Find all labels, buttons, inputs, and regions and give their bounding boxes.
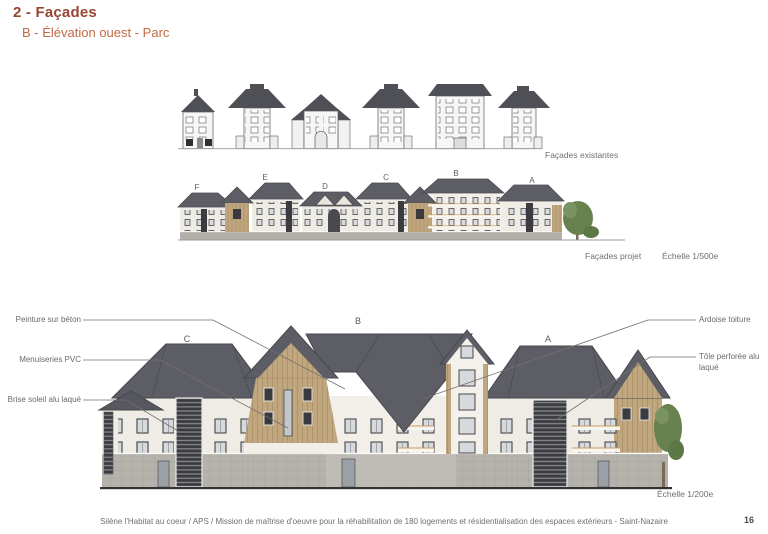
detail-letter-b: B xyxy=(355,316,361,326)
project-caption: Façades projet xyxy=(585,251,641,261)
existing-caption: Façades existantes xyxy=(545,150,618,160)
annotation-ardoise: Ardoise toiture xyxy=(699,314,767,325)
stair-tower-c xyxy=(176,398,202,487)
tree-small xyxy=(563,201,599,240)
stair-tower-a xyxy=(533,400,567,487)
annotation-menuiseries: Menuiseries PVC xyxy=(19,354,81,365)
existing-building-2 xyxy=(228,84,286,149)
detail-letter-c: C xyxy=(184,334,191,344)
detail-ground-line xyxy=(100,487,672,489)
existing-facades-drawing xyxy=(170,75,570,160)
page-title: 2 - Façades xyxy=(13,4,97,21)
project-facades-drawing: F E D C B A xyxy=(170,162,640,247)
existing-building-5 xyxy=(428,84,492,149)
document-page: 2 - Façades B - Élévation ouest - Parc xyxy=(0,0,768,534)
existing-building-3 xyxy=(291,94,351,149)
page-number: 16 xyxy=(744,515,754,525)
project-letter-c: C xyxy=(383,173,389,182)
annotation-peinture: Peinture sur béton xyxy=(16,314,81,325)
detail-scale: Échelle 1/200e xyxy=(657,489,713,499)
existing-building-1 xyxy=(181,89,215,149)
project-letter-e: E xyxy=(262,173,267,182)
project-letter-f: F xyxy=(195,183,200,192)
project-letter-d: D xyxy=(322,182,328,191)
existing-building-6 xyxy=(498,86,550,149)
footer-credit: Silène l'Habitat au coeur / APS / Missio… xyxy=(0,517,768,526)
page-subtitle: B - Élévation ouest - Parc xyxy=(22,25,169,40)
project-scale: Échelle 1/500e xyxy=(662,251,718,261)
annotation-tole: Tôle perforée alu laqué xyxy=(699,351,767,373)
project-letter-b: B xyxy=(453,169,458,178)
project-letter-a: A xyxy=(529,176,535,185)
detail-letter-a: A xyxy=(545,334,551,344)
detail-elevation-drawing: C B A xyxy=(0,300,768,500)
existing-building-4 xyxy=(362,84,420,149)
annotation-brise: Brise soleil alu laqué xyxy=(8,394,81,405)
